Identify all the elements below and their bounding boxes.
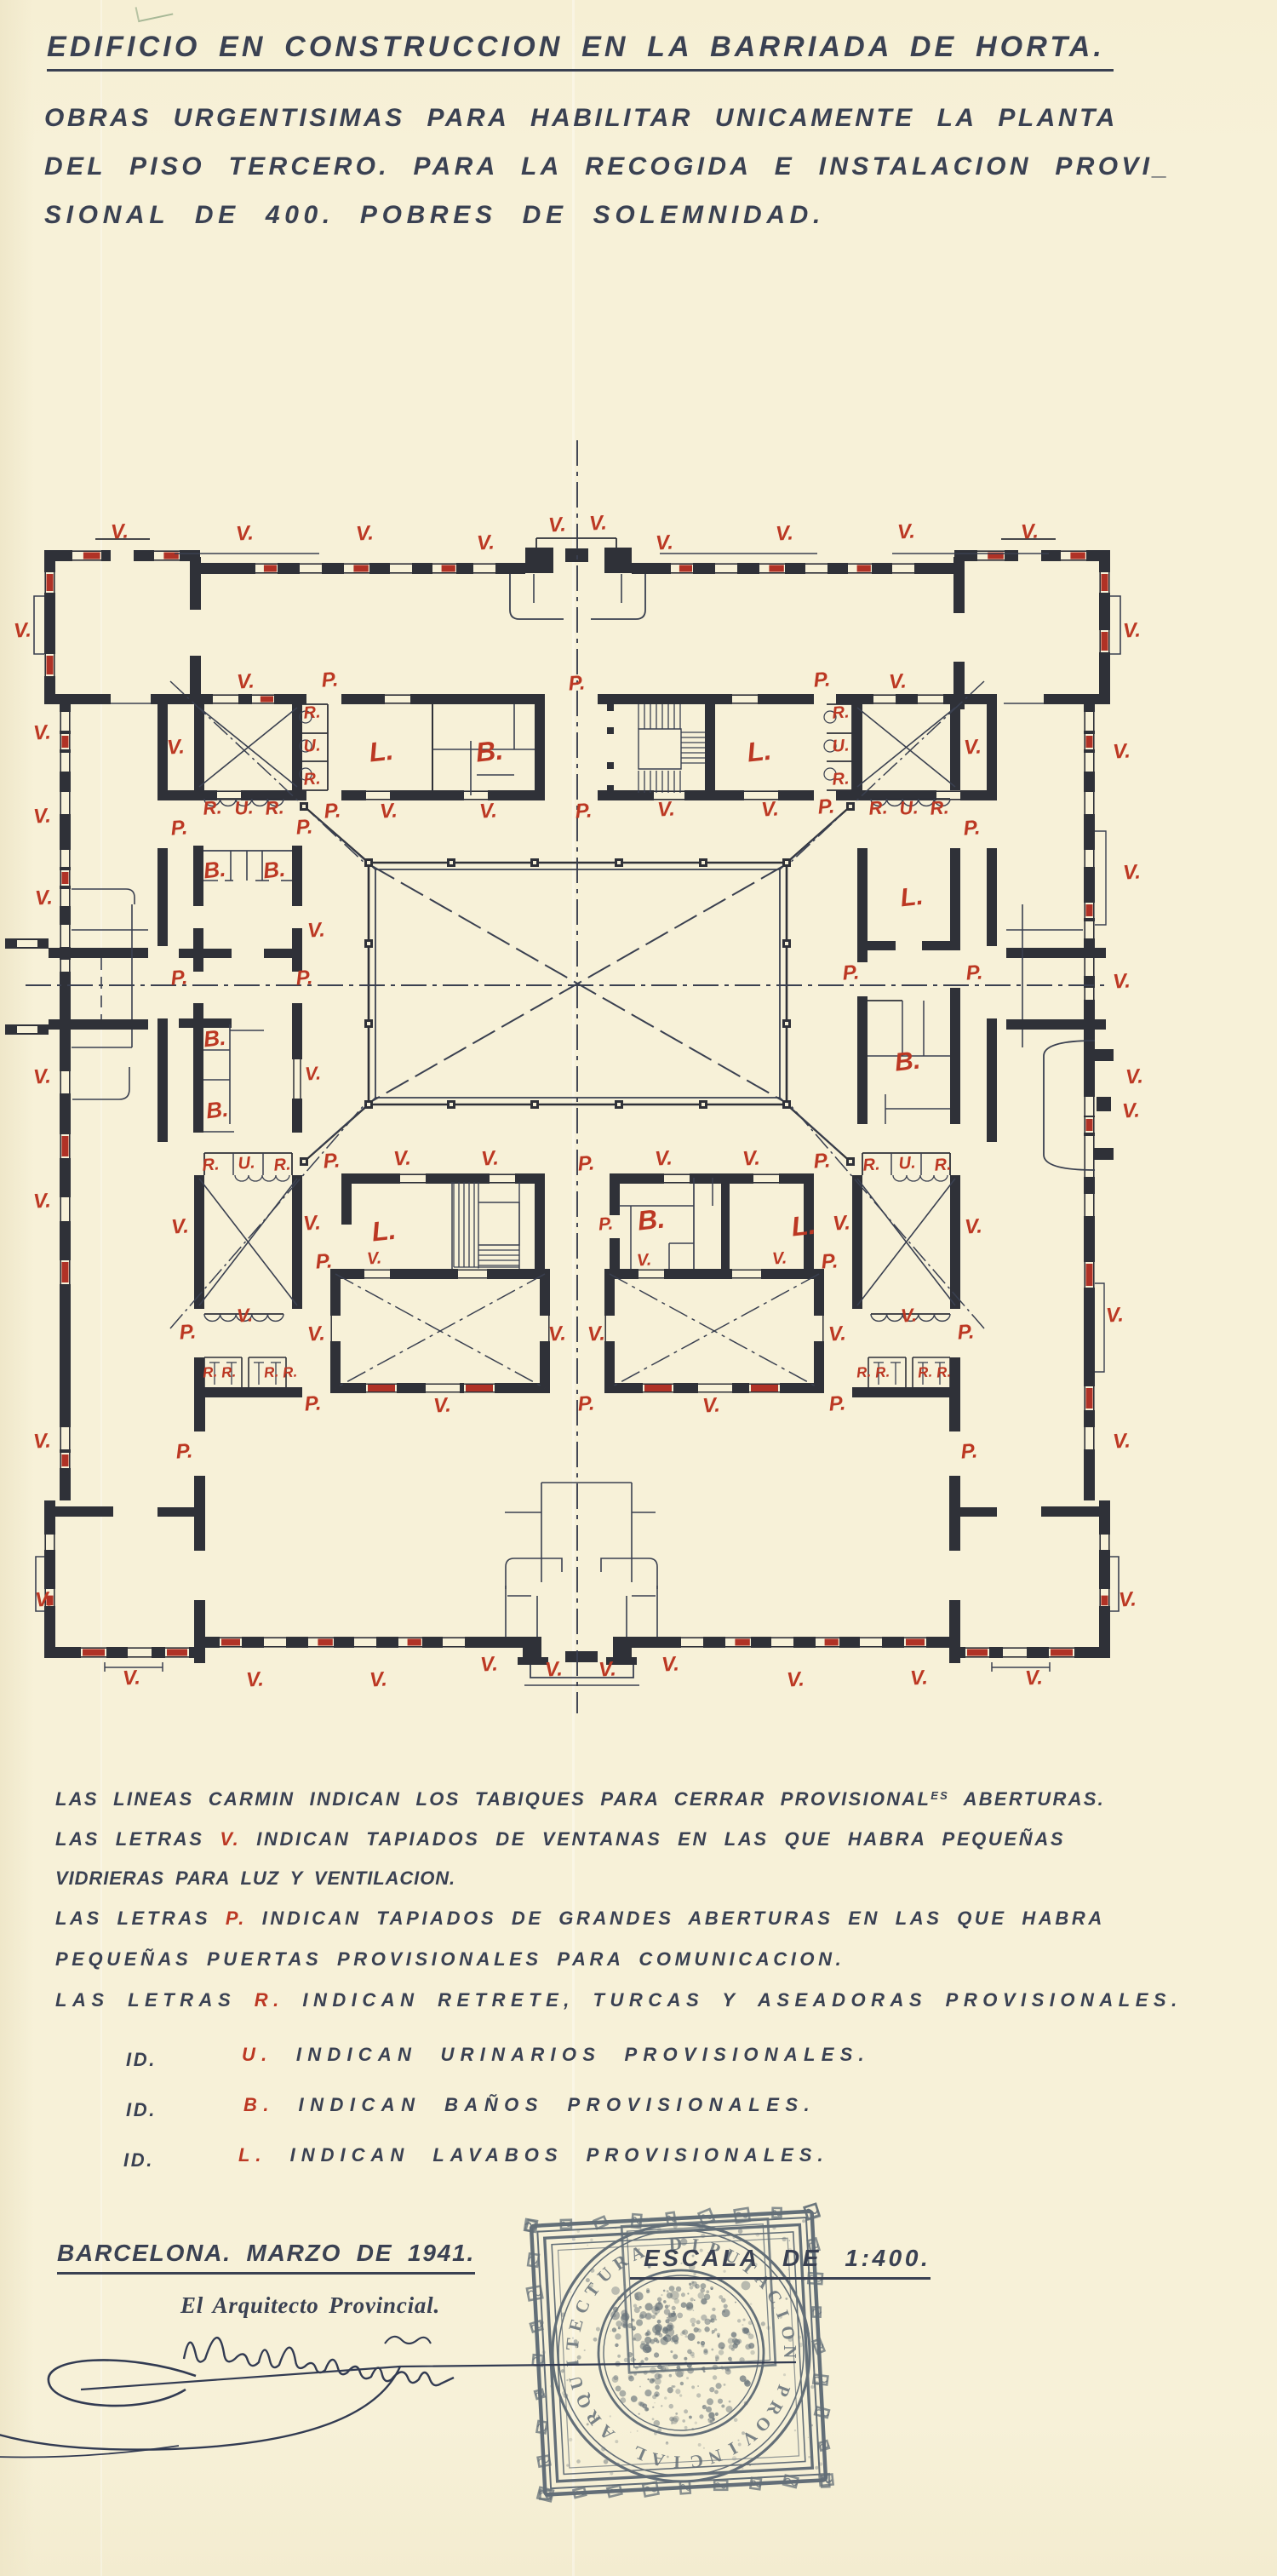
svg-text:V.: V.	[1122, 618, 1141, 642]
svg-text:R.: R.	[303, 769, 321, 789]
svg-text:V.: V.	[1105, 1303, 1124, 1327]
svg-text:V.: V.	[1118, 1587, 1137, 1611]
svg-text:V.: V.	[110, 519, 129, 543]
svg-text:R.: R.	[936, 1363, 951, 1380]
svg-text:R.: R.	[862, 1155, 880, 1174]
svg-text:U.: U.	[832, 736, 850, 755]
svg-text:R.: R.	[930, 796, 950, 818]
svg-text:B.: B.	[262, 856, 287, 884]
svg-text:V.: V.	[379, 799, 398, 823]
svg-text:V.: V.	[832, 1211, 850, 1235]
svg-text:P.: P.	[175, 1439, 193, 1463]
svg-text:R.: R.	[203, 796, 223, 818]
svg-text:V.: V.	[827, 1322, 846, 1345]
svg-text:U.: U.	[303, 736, 321, 755]
svg-text:U: U	[593, 2263, 617, 2286]
svg-text:V.: V.	[480, 1146, 499, 1170]
svg-text:P.: P.	[965, 961, 983, 984]
svg-text:V.: V.	[432, 1393, 451, 1417]
svg-text:V.: V.	[34, 1587, 53, 1611]
svg-text:P.: P.	[170, 816, 188, 840]
svg-text:V.: V.	[32, 804, 51, 828]
svg-text:V.: V.	[544, 1657, 563, 1681]
svg-text:P.: P.	[568, 671, 586, 695]
svg-text:V.: V.	[1112, 739, 1131, 763]
svg-text:R.: R.	[934, 1155, 952, 1174]
svg-text:P.: P.	[170, 966, 188, 990]
svg-text:V.: V.	[170, 1214, 189, 1238]
svg-text:N: N	[780, 2345, 800, 2358]
svg-text:L.: L.	[370, 1214, 398, 1248]
svg-text:V.: V.	[1121, 1099, 1140, 1122]
svg-text:V.: V.	[1125, 1064, 1143, 1088]
svg-text:P.: P.	[295, 815, 313, 839]
svg-text:T: T	[562, 2338, 583, 2351]
svg-text:V.: V.	[771, 1248, 787, 1268]
svg-text:V.: V.	[32, 1429, 51, 1453]
svg-text:V.: V.	[476, 531, 495, 554]
svg-text:V.: V.	[775, 521, 793, 545]
svg-text:B.: B.	[203, 856, 227, 884]
svg-text:P.: P.	[304, 1391, 322, 1415]
svg-text:P.: P.	[813, 668, 831, 691]
svg-text:V.: V.	[656, 797, 675, 821]
svg-text:V.: V.	[13, 618, 31, 642]
svg-text:V.: V.	[235, 521, 254, 545]
svg-text:V.: V.	[661, 1652, 679, 1676]
svg-text:V.: V.	[34, 886, 53, 909]
svg-text:P.: P.	[321, 668, 339, 691]
svg-text:V.: V.	[1020, 519, 1039, 543]
svg-text:V.: V.	[1122, 860, 1141, 884]
svg-text:P.: P.	[323, 1149, 341, 1173]
svg-text:R.: R.	[832, 703, 850, 722]
svg-text:R.: R.	[874, 1363, 890, 1380]
svg-text:V.: V.	[306, 918, 325, 942]
svg-text:P.: P.	[813, 1149, 831, 1173]
svg-text:I: I	[673, 2452, 681, 2472]
svg-text:R: R	[763, 2398, 787, 2420]
svg-text:B.: B.	[205, 1096, 230, 1124]
svg-text:V.: V.	[479, 1652, 498, 1676]
svg-text:R.: R.	[263, 1363, 278, 1380]
svg-text:P.: P.	[315, 1249, 333, 1273]
svg-text:P.: P.	[179, 1320, 197, 1344]
svg-text:B.: B.	[474, 734, 505, 767]
svg-text:V.: V.	[655, 531, 673, 554]
svg-text:V.: V.	[1112, 969, 1131, 993]
svg-text:V.: V.	[1112, 1429, 1131, 1453]
svg-text:P.: P.	[828, 1391, 846, 1415]
svg-text:V.: V.	[366, 1248, 382, 1268]
svg-text:V.: V.	[245, 1667, 264, 1691]
svg-text:V.: V.	[654, 1146, 673, 1170]
svg-text:R.: R.	[282, 1363, 297, 1380]
svg-text:V.: V.	[369, 1667, 387, 1691]
svg-text:N: N	[706, 2445, 724, 2469]
svg-text:B.: B.	[203, 1024, 227, 1053]
svg-text:P.: P.	[821, 1249, 839, 1273]
svg-text:P.: P.	[577, 1151, 595, 1175]
svg-text:L: L	[630, 2441, 649, 2465]
svg-text:V.: V.	[302, 1211, 321, 1235]
svg-text:P.: P.	[842, 961, 860, 984]
svg-text:V.: V.	[636, 1250, 652, 1270]
svg-text:R.: R.	[273, 1155, 291, 1174]
svg-text:P.: P.	[295, 966, 313, 990]
svg-text:V.: V.	[306, 1322, 325, 1345]
svg-text:L.: L.	[368, 735, 395, 768]
svg-text:V.: V.	[588, 511, 607, 535]
svg-text:R.: R.	[202, 1363, 217, 1380]
svg-text:R.: R.	[868, 796, 889, 818]
svg-text:V.: V.	[964, 1214, 982, 1238]
svg-text:V.: V.	[32, 1189, 51, 1213]
svg-text:P.: P.	[575, 799, 593, 823]
svg-text:V.: V.	[760, 797, 779, 821]
svg-text:P.: P.	[577, 1391, 595, 1415]
svg-text:R.: R.	[265, 796, 285, 818]
svg-text:V.: V.	[1024, 1666, 1043, 1690]
svg-text:I: I	[562, 2359, 583, 2368]
svg-text:V.: V.	[786, 1667, 805, 1691]
svg-text:V.: V.	[587, 1322, 605, 1345]
svg-text:V.: V.	[304, 1062, 321, 1084]
svg-text:C: C	[689, 2450, 704, 2472]
svg-text:P.: P.	[957, 1320, 975, 1344]
svg-text:E: E	[564, 2316, 587, 2333]
svg-text:P.: P.	[324, 799, 341, 823]
svg-text:U: U	[564, 2373, 587, 2391]
svg-text:L.: L.	[790, 1209, 817, 1242]
svg-text:V.: V.	[122, 1666, 140, 1690]
svg-text:V.: V.	[547, 513, 566, 536]
svg-text:R.: R.	[220, 1363, 236, 1380]
svg-text:R.: R.	[856, 1363, 871, 1380]
svg-text:V.: V.	[547, 1322, 566, 1345]
svg-text:R: R	[581, 2406, 605, 2429]
svg-text:R.: R.	[832, 769, 850, 789]
svg-text:R.: R.	[917, 1363, 932, 1380]
svg-text:V.: V.	[896, 519, 915, 543]
svg-text:C: C	[570, 2297, 594, 2317]
svg-text:V: V	[738, 2425, 761, 2449]
svg-text:R.: R.	[202, 1155, 220, 1174]
svg-text:U.: U.	[898, 1153, 916, 1173]
svg-text:P: P	[771, 2382, 794, 2399]
svg-text:V.: V.	[392, 1146, 411, 1170]
svg-text:B.: B.	[893, 1047, 921, 1077]
svg-text:B.: B.	[636, 1202, 667, 1236]
svg-text:V.: V.	[909, 1666, 928, 1690]
svg-text:P.: P.	[960, 1439, 978, 1463]
svg-text:L.: L.	[746, 735, 773, 768]
svg-text:V.: V.	[701, 1393, 720, 1417]
svg-text:V.: V.	[900, 1304, 917, 1326]
svg-text:V.: V.	[32, 1064, 51, 1088]
svg-text:V.: V.	[236, 669, 255, 693]
svg-text:U.: U.	[899, 796, 919, 818]
svg-text:L.: L.	[899, 882, 925, 913]
svg-text:A: A	[594, 2420, 618, 2444]
svg-text:Q: Q	[571, 2390, 596, 2412]
svg-text:V.: V.	[888, 669, 907, 693]
svg-text:R.: R.	[303, 703, 321, 722]
svg-text:P.: P.	[598, 1213, 614, 1234]
svg-text:V.: V.	[742, 1146, 760, 1170]
svg-text:P.: P.	[817, 795, 835, 818]
svg-text:T: T	[581, 2279, 604, 2300]
svg-text:P.: P.	[963, 816, 981, 840]
svg-text:V.: V.	[963, 735, 982, 759]
svg-text:V.: V.	[478, 799, 497, 823]
svg-text:V.: V.	[166, 735, 185, 759]
svg-text:A: A	[649, 2448, 667, 2471]
svg-text:V.: V.	[598, 1657, 616, 1681]
svg-text:V.: V.	[236, 1304, 253, 1326]
svg-text:U.: U.	[238, 1153, 255, 1173]
svg-text:V.: V.	[32, 720, 51, 744]
svg-text:I: I	[772, 2307, 793, 2321]
svg-text:U.: U.	[234, 796, 255, 818]
svg-text:V.: V.	[355, 521, 374, 545]
